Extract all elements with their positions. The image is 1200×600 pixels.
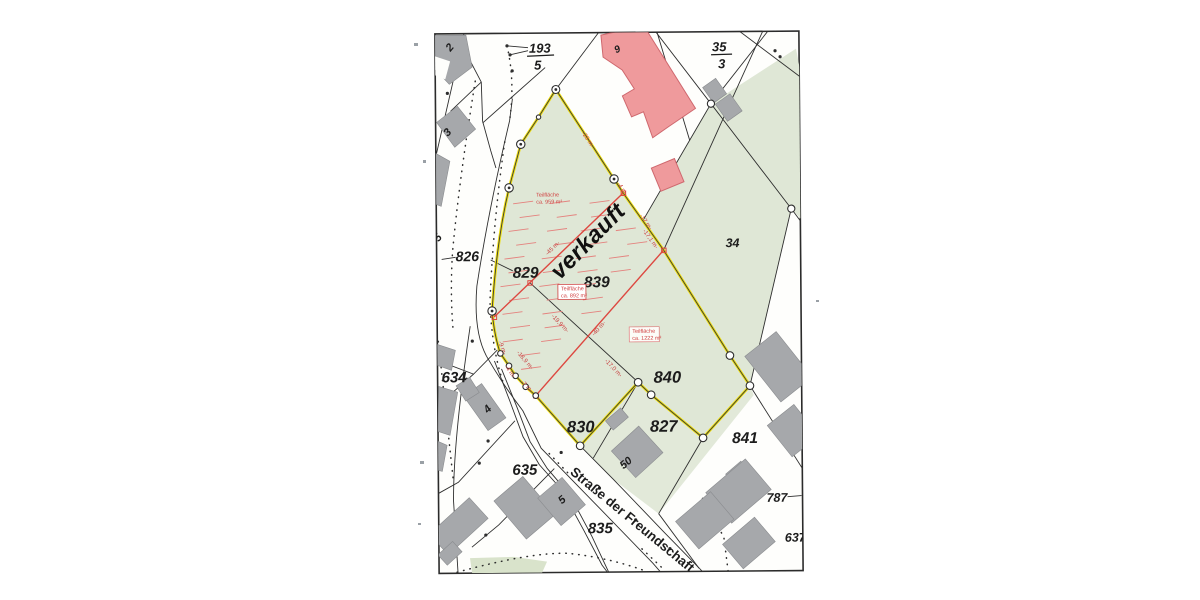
svg-text:5: 5 bbox=[534, 58, 542, 73]
svg-text:787: 787 bbox=[766, 491, 788, 505]
svg-text:ca. 1222 m²: ca. 1222 m² bbox=[632, 336, 661, 342]
svg-text:827: 827 bbox=[650, 418, 678, 436]
svg-text:193: 193 bbox=[529, 41, 552, 56]
svg-text:839: 839 bbox=[584, 274, 610, 291]
svg-text:Teilfläche: Teilfläche bbox=[632, 329, 655, 335]
svg-text:ca. 959 m²: ca. 959 m² bbox=[536, 199, 562, 205]
svg-text:829: 829 bbox=[513, 265, 539, 282]
svg-text:835: 835 bbox=[588, 520, 614, 537]
svg-text:Teilfläche: Teilfläche bbox=[536, 192, 559, 198]
svg-text:830: 830 bbox=[567, 418, 595, 436]
svg-text:3: 3 bbox=[718, 56, 726, 71]
svg-text:34: 34 bbox=[725, 236, 739, 250]
svg-text:Teilfläche: Teilfläche bbox=[561, 286, 584, 292]
svg-text:635: 635 bbox=[512, 462, 538, 479]
svg-text:840: 840 bbox=[654, 369, 682, 387]
svg-text:ca. 892 m²: ca. 892 m² bbox=[561, 293, 587, 299]
svg-text:634: 634 bbox=[442, 369, 468, 386]
svg-text:826: 826 bbox=[456, 248, 480, 264]
svg-text:841: 841 bbox=[732, 430, 758, 447]
svg-text:35: 35 bbox=[712, 39, 727, 54]
